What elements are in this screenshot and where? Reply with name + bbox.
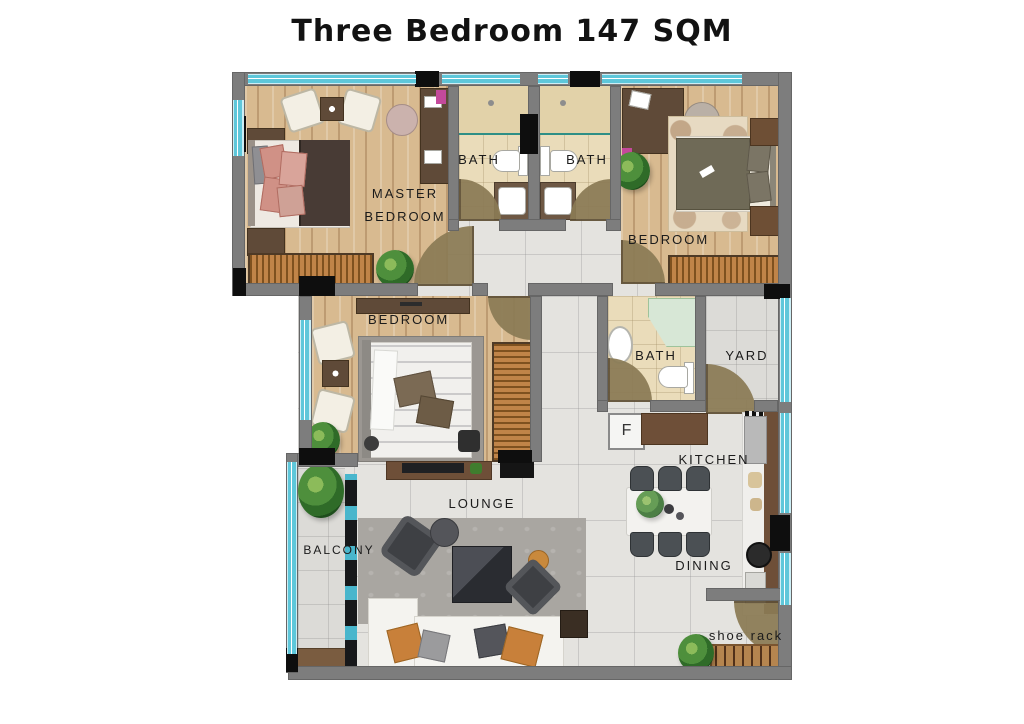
shower-head-icon <box>560 100 566 106</box>
floor-plan: F <box>0 0 1024 724</box>
wall <box>606 219 621 231</box>
vanity-stool <box>386 104 418 136</box>
sofa-side-table <box>560 610 588 638</box>
column <box>415 71 439 87</box>
wardrobe <box>492 342 532 462</box>
sofa-pillow <box>417 629 450 662</box>
window <box>248 74 416 84</box>
cooking-pot <box>746 542 772 568</box>
wall <box>706 588 790 601</box>
pillow <box>279 151 308 187</box>
wall <box>597 296 608 412</box>
window <box>442 74 520 84</box>
room-label-dining: DINING <box>664 554 744 577</box>
room-label-bath3: BATH <box>628 344 684 367</box>
pillow <box>416 395 454 428</box>
bed-blanket <box>676 138 750 210</box>
room-label-bath1: BATH <box>448 148 510 171</box>
bath1-glass-divider <box>459 133 528 135</box>
pillow <box>746 171 771 203</box>
window <box>602 74 742 84</box>
room-label-bath2: BATH <box>556 148 618 171</box>
plate <box>664 504 674 514</box>
nightstand <box>750 118 780 146</box>
side-table <box>322 360 349 387</box>
column <box>299 448 335 465</box>
room-label-yard: YARD <box>716 344 778 367</box>
column <box>770 515 790 551</box>
nightstand <box>247 228 285 256</box>
fridge-box: F <box>608 413 645 450</box>
balcony-plant <box>298 464 344 518</box>
toilet-tank <box>540 146 550 176</box>
label-shoe-rack: shoe rack <box>700 624 792 647</box>
window <box>287 462 297 654</box>
table-plant <box>636 490 664 518</box>
sink <box>498 187 526 215</box>
bath2-glass-divider <box>540 133 610 135</box>
wall <box>448 219 459 231</box>
coffee-table <box>452 546 512 603</box>
wall <box>597 400 608 412</box>
wall <box>499 219 566 231</box>
window <box>780 298 791 402</box>
balcony-threshold <box>298 648 345 666</box>
sliding-glass-door <box>345 474 357 666</box>
nightstand <box>750 206 780 236</box>
pillow <box>370 349 398 430</box>
sink <box>544 187 572 215</box>
column <box>764 284 790 299</box>
window <box>538 74 568 84</box>
column <box>520 114 538 154</box>
wall <box>528 86 540 231</box>
console-plant <box>470 463 482 474</box>
pillow <box>277 185 306 218</box>
room-label-lounge: LOUNGE <box>442 492 522 515</box>
window <box>780 553 791 605</box>
column <box>570 71 600 87</box>
plate <box>676 512 684 520</box>
speaker <box>364 436 379 451</box>
wall <box>754 400 778 412</box>
bath2-shower <box>540 86 610 135</box>
desk-accessory <box>436 90 446 104</box>
room-label-bedroom-left: BEDROOM <box>368 308 440 331</box>
window <box>233 100 244 156</box>
column <box>498 450 532 463</box>
window <box>300 320 311 420</box>
room-label-balcony: BALCONY <box>300 540 378 562</box>
shower-head-icon <box>488 100 494 106</box>
wall <box>472 283 488 296</box>
speaker <box>458 430 480 452</box>
room-label-bedroom-right: BEDROOM <box>628 228 704 251</box>
wall <box>530 296 542 462</box>
window <box>780 413 791 513</box>
room-label-master: MASTER BEDROOM <box>364 182 446 229</box>
desk-item <box>424 150 442 164</box>
shelf-handle <box>400 302 422 306</box>
column <box>233 268 246 296</box>
kitchen-item <box>750 498 762 511</box>
wall <box>650 400 706 412</box>
dining-chair <box>630 466 654 491</box>
kitchen-item <box>748 472 762 488</box>
dining-chair <box>630 532 654 557</box>
side-table <box>320 97 344 121</box>
wall <box>288 666 792 680</box>
tv <box>402 463 464 473</box>
column <box>299 276 335 296</box>
round-side-table <box>430 518 459 547</box>
wall <box>695 296 706 412</box>
wall <box>655 283 778 296</box>
toilet-bowl <box>658 366 688 388</box>
counter <box>641 413 708 445</box>
wall <box>528 283 613 296</box>
room-label-kitchen: KITCHEN <box>666 448 762 471</box>
bath1-shower <box>459 86 528 135</box>
